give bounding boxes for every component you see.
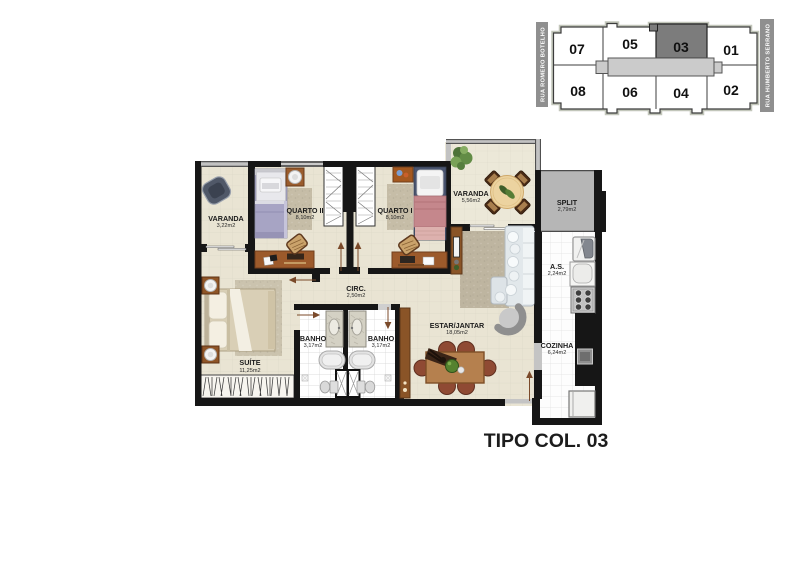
svg-text:BANHO: BANHO bbox=[300, 334, 327, 343]
svg-text:SPLIT: SPLIT bbox=[557, 198, 578, 207]
svg-text:ESTAR/JANTAR: ESTAR/JANTAR bbox=[430, 321, 485, 330]
svg-text:BANHO: BANHO bbox=[368, 334, 395, 343]
svg-text:8,10m2: 8,10m2 bbox=[296, 215, 315, 221]
svg-text:3,17m2: 3,17m2 bbox=[372, 343, 391, 349]
svg-text:18,05m2: 18,05m2 bbox=[446, 330, 468, 336]
svg-text:05: 05 bbox=[622, 36, 638, 52]
svg-text:08: 08 bbox=[570, 83, 586, 99]
svg-text:VARANDA: VARANDA bbox=[208, 214, 243, 223]
svg-text:QUARTO II: QUARTO II bbox=[286, 206, 323, 215]
svg-text:01: 01 bbox=[723, 42, 739, 58]
svg-text:3,17m2: 3,17m2 bbox=[304, 343, 323, 349]
svg-text:07: 07 bbox=[569, 41, 585, 57]
svg-text:03: 03 bbox=[673, 39, 689, 55]
svg-text:CIRC.: CIRC. bbox=[346, 284, 366, 293]
svg-text:2,50m2: 2,50m2 bbox=[347, 293, 366, 299]
svg-text:8,10m2: 8,10m2 bbox=[386, 215, 405, 221]
svg-text:5,56m2: 5,56m2 bbox=[462, 198, 481, 204]
svg-text:SUÍTE: SUÍTE bbox=[239, 358, 260, 367]
svg-text:VARANDA: VARANDA bbox=[453, 189, 488, 198]
svg-text:RUA HUMBERTO SERRANO: RUA HUMBERTO SERRANO bbox=[766, 24, 772, 108]
svg-text:6,24m2: 6,24m2 bbox=[548, 350, 567, 356]
svg-text:06: 06 bbox=[622, 84, 638, 100]
svg-text:04: 04 bbox=[673, 85, 689, 101]
svg-text:QUARTO I: QUARTO I bbox=[377, 206, 412, 215]
svg-text:TIPO COL. 03: TIPO COL. 03 bbox=[484, 430, 609, 452]
svg-text:COZINHA: COZINHA bbox=[541, 341, 574, 350]
svg-text:2,79m2: 2,79m2 bbox=[558, 207, 577, 213]
svg-text:RUA ROMERO BOTELHO: RUA ROMERO BOTELHO bbox=[541, 27, 547, 102]
svg-text:A.S.: A.S. bbox=[550, 262, 564, 271]
svg-text:2,24m2: 2,24m2 bbox=[548, 271, 567, 277]
svg-text:3,22m2: 3,22m2 bbox=[217, 223, 236, 229]
svg-text:02: 02 bbox=[723, 82, 739, 98]
svg-text:11,25m2: 11,25m2 bbox=[239, 368, 260, 374]
